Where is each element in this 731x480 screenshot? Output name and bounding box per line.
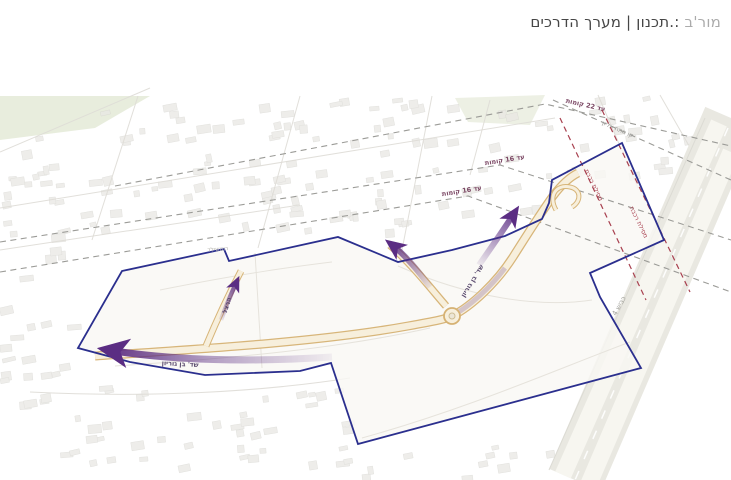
building-footprint bbox=[69, 449, 80, 456]
building-footprint bbox=[81, 211, 94, 219]
building-footprint bbox=[296, 391, 308, 399]
building-footprint bbox=[367, 466, 373, 475]
building-footprint bbox=[672, 134, 680, 141]
building-footprint bbox=[56, 183, 65, 188]
building-footprint bbox=[212, 182, 220, 190]
building-footprint bbox=[259, 103, 271, 113]
building-footprint bbox=[163, 103, 178, 112]
building-footprint bbox=[489, 143, 501, 154]
building-footprint bbox=[0, 377, 9, 383]
building-footprint bbox=[415, 185, 422, 194]
building-footprint bbox=[184, 442, 194, 450]
building-footprint bbox=[75, 415, 81, 422]
building-footprint bbox=[491, 445, 499, 450]
building-footprint bbox=[242, 222, 250, 232]
building-footprint bbox=[308, 392, 315, 397]
building-footprint bbox=[67, 324, 81, 330]
building-footprint bbox=[169, 111, 179, 119]
building-footprint bbox=[403, 452, 413, 459]
building-footprint bbox=[380, 150, 390, 158]
building-footprint bbox=[316, 169, 328, 178]
building-footprint bbox=[244, 176, 256, 185]
building-footprint bbox=[374, 125, 381, 132]
building-footprint bbox=[339, 445, 348, 451]
building-footprint bbox=[248, 455, 259, 463]
building-footprint bbox=[535, 121, 548, 127]
building-footprint bbox=[263, 427, 277, 435]
building-footprint bbox=[213, 124, 225, 133]
building-footprint bbox=[643, 96, 651, 102]
building-footprint bbox=[369, 106, 379, 111]
building-footprint bbox=[281, 110, 294, 117]
building-footprint bbox=[316, 391, 327, 401]
building-footprint bbox=[41, 372, 52, 380]
building-footprint bbox=[250, 431, 261, 440]
building-footprint bbox=[438, 201, 449, 211]
building-footprint bbox=[233, 119, 245, 126]
building-footprint bbox=[89, 459, 97, 466]
building-footprint bbox=[276, 222, 290, 233]
building-footprint bbox=[140, 128, 146, 134]
building-footprint bbox=[3, 220, 12, 226]
building-footprint bbox=[313, 136, 320, 142]
building-footprint bbox=[50, 247, 62, 256]
building-footprint bbox=[32, 174, 39, 181]
building-footprint bbox=[401, 104, 409, 111]
building-footprint bbox=[661, 157, 669, 165]
building-footprint bbox=[2, 356, 16, 363]
building-footprint bbox=[184, 194, 193, 202]
building-footprint bbox=[237, 445, 244, 453]
building-footprint bbox=[409, 100, 419, 109]
building-footprint bbox=[49, 197, 56, 204]
building-footprint bbox=[423, 138, 438, 149]
building-footprint bbox=[4, 191, 12, 200]
building-footprint bbox=[273, 122, 281, 130]
building-footprint bbox=[193, 168, 206, 175]
building-footprint bbox=[59, 363, 71, 372]
height-limit-label-16b: עד 16 קומות bbox=[441, 184, 482, 198]
building-footprint bbox=[41, 320, 52, 328]
building-footprint bbox=[49, 164, 59, 171]
building-footprint bbox=[344, 458, 353, 464]
building-footprint bbox=[10, 335, 24, 341]
building-footprint bbox=[392, 98, 403, 103]
building-footprint bbox=[580, 143, 590, 152]
building-footprint bbox=[0, 344, 12, 352]
building-footprint bbox=[284, 123, 291, 131]
building-footprint bbox=[478, 460, 488, 467]
height-limit-label-16a: עד 16 קומות bbox=[484, 153, 525, 167]
building-footprint bbox=[330, 216, 344, 223]
building-footprint bbox=[383, 117, 395, 127]
building-footprint bbox=[142, 390, 149, 397]
building-footprint bbox=[187, 412, 202, 421]
building-footprint bbox=[381, 170, 394, 178]
building-footprint bbox=[134, 190, 140, 197]
building-footprint bbox=[236, 429, 244, 437]
building-footprint bbox=[52, 371, 61, 378]
building-footprint bbox=[157, 436, 165, 443]
building-footprint bbox=[152, 186, 158, 191]
building-footprint bbox=[0, 305, 14, 316]
building-footprint bbox=[240, 412, 248, 419]
building-footprint bbox=[196, 124, 211, 134]
building-footprint bbox=[447, 104, 460, 113]
building-footprint bbox=[508, 183, 522, 192]
building-footprint bbox=[10, 231, 17, 237]
building-footprint bbox=[22, 355, 37, 364]
building-footprint bbox=[272, 130, 285, 138]
building-footprint bbox=[27, 323, 36, 331]
building-footprint bbox=[304, 227, 312, 234]
building-footprint bbox=[385, 229, 395, 238]
building-footprint bbox=[260, 448, 266, 453]
building-footprint bbox=[497, 463, 510, 473]
roundabout-island bbox=[449, 313, 455, 319]
building-footprint bbox=[462, 210, 475, 219]
building-footprint bbox=[308, 461, 317, 471]
building-footprint bbox=[90, 222, 97, 227]
building-footprint bbox=[120, 134, 134, 143]
building-footprint bbox=[89, 179, 103, 187]
building-footprint bbox=[131, 441, 145, 451]
building-footprint bbox=[24, 399, 38, 408]
building-footprint bbox=[178, 464, 191, 473]
building-footprint bbox=[546, 173, 552, 178]
plan-map: כביש 4 עד 22 קומות עד 16 קומות עד 16 קומ… bbox=[0, 0, 731, 480]
building-footprint bbox=[185, 136, 196, 143]
building-footprint bbox=[377, 189, 383, 197]
building-footprint bbox=[88, 424, 102, 434]
building-footprint bbox=[25, 182, 33, 188]
building-footprint bbox=[520, 207, 532, 216]
building-footprint bbox=[447, 138, 459, 146]
building-footprint bbox=[102, 421, 112, 430]
building-footprint bbox=[485, 452, 495, 459]
building-footprint bbox=[462, 475, 473, 480]
building-footprint bbox=[412, 138, 421, 148]
green-area bbox=[0, 96, 150, 140]
building-footprint bbox=[40, 393, 51, 403]
building-footprint bbox=[366, 177, 374, 183]
building-footprint bbox=[218, 213, 230, 223]
building-footprint bbox=[343, 427, 354, 435]
building-footprint bbox=[99, 385, 113, 391]
building-footprint bbox=[484, 187, 493, 195]
building-footprint bbox=[299, 125, 307, 134]
building-footprint bbox=[194, 183, 206, 193]
building-footprint bbox=[305, 183, 313, 191]
building-footprint bbox=[305, 402, 318, 408]
building-footprint bbox=[43, 166, 49, 175]
plan-slide: מור'ב :.תכנון | מערך הדרכים bbox=[0, 0, 731, 480]
building-footprint bbox=[86, 435, 98, 444]
building-footprint bbox=[650, 115, 659, 125]
building-footprint bbox=[23, 373, 32, 381]
building-footprint bbox=[263, 396, 269, 403]
building-footprint bbox=[20, 275, 34, 282]
building-footprint bbox=[212, 420, 221, 429]
building-footprint bbox=[241, 418, 255, 427]
building-footprint bbox=[668, 139, 675, 148]
building-footprint bbox=[433, 167, 440, 173]
building-footprint bbox=[139, 457, 148, 462]
building-footprint bbox=[107, 457, 116, 464]
building-footprint bbox=[290, 211, 304, 217]
building-footprint bbox=[376, 200, 387, 210]
building-footprint bbox=[167, 133, 179, 142]
building-footprint bbox=[21, 150, 32, 161]
building-footprint bbox=[110, 209, 122, 218]
green-area bbox=[455, 95, 545, 125]
building-footprint bbox=[498, 110, 507, 119]
building-footprint bbox=[547, 125, 553, 131]
building-footprint bbox=[40, 180, 52, 186]
building-footprint bbox=[509, 452, 517, 459]
building-footprint bbox=[546, 450, 555, 458]
building-footprint bbox=[176, 117, 186, 124]
